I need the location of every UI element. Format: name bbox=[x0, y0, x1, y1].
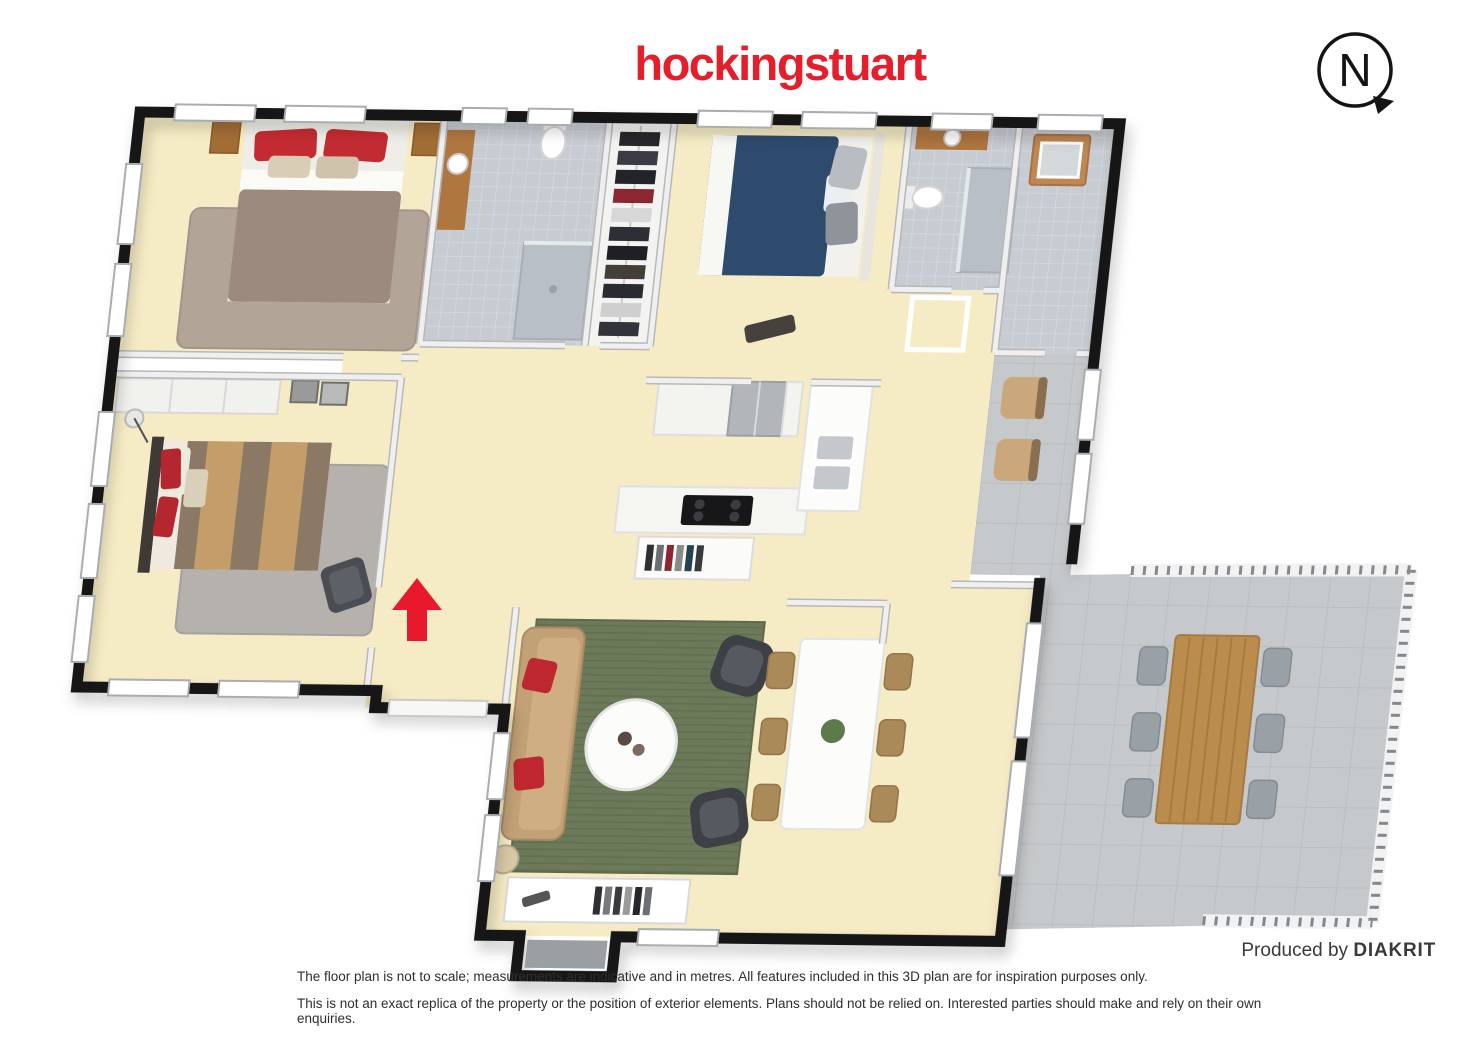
fireplace-inset bbox=[525, 940, 608, 969]
kitchen-cabinets bbox=[653, 381, 733, 436]
island-bench bbox=[797, 382, 873, 511]
wall-frame-2 bbox=[320, 383, 348, 405]
produced-by-prefix: Produced by bbox=[1241, 940, 1348, 961]
bench-sink-1 bbox=[815, 435, 856, 461]
produced-by-brand: DIAKRIT bbox=[1353, 940, 1436, 961]
kitchen-sideboard bbox=[634, 537, 754, 580]
compass-pointer bbox=[1373, 96, 1394, 114]
bench-sink-2 bbox=[811, 465, 852, 491]
laundry bbox=[1029, 135, 1091, 186]
wall-frame-1 bbox=[290, 380, 318, 402]
master-bedroom bbox=[176, 115, 444, 351]
floorplan-page: hockingstuart bbox=[0, 0, 1472, 1041]
patio-deck bbox=[1121, 635, 1294, 825]
outdoor-armchair-2 bbox=[993, 439, 1042, 482]
ensuite-shower bbox=[514, 243, 593, 340]
house bbox=[38, 104, 1461, 986]
front-door bbox=[388, 700, 488, 717]
bedroom3-bed bbox=[137, 437, 332, 575]
compass-north-label: N bbox=[1338, 44, 1371, 96]
dining-area bbox=[750, 638, 915, 830]
fridge bbox=[727, 381, 787, 436]
disclaimer-line-1: The floor plan is not to scale; measurem… bbox=[297, 969, 1277, 984]
bedroom2-bed bbox=[697, 131, 885, 281]
produced-by: Produced by DIAKRIT bbox=[1241, 940, 1436, 962]
nightstand-left bbox=[210, 121, 242, 153]
floorplan-3d: N bbox=[0, 0, 1472, 1041]
cooktop bbox=[680, 495, 753, 526]
master-bed bbox=[223, 115, 413, 303]
bathroom2-basin bbox=[943, 130, 961, 146]
bedroom3-wardrobe bbox=[115, 378, 281, 414]
bathroom2-toilet bbox=[903, 185, 944, 209]
compass: N bbox=[1319, 34, 1394, 114]
entry-floor bbox=[365, 545, 523, 709]
low-bookshelf bbox=[504, 877, 691, 923]
outdoor-armchair-1 bbox=[999, 377, 1048, 420]
disclaimer-line-2: This is not an exact replica of the prop… bbox=[297, 996, 1277, 1026]
laundry-sink bbox=[1038, 143, 1082, 177]
